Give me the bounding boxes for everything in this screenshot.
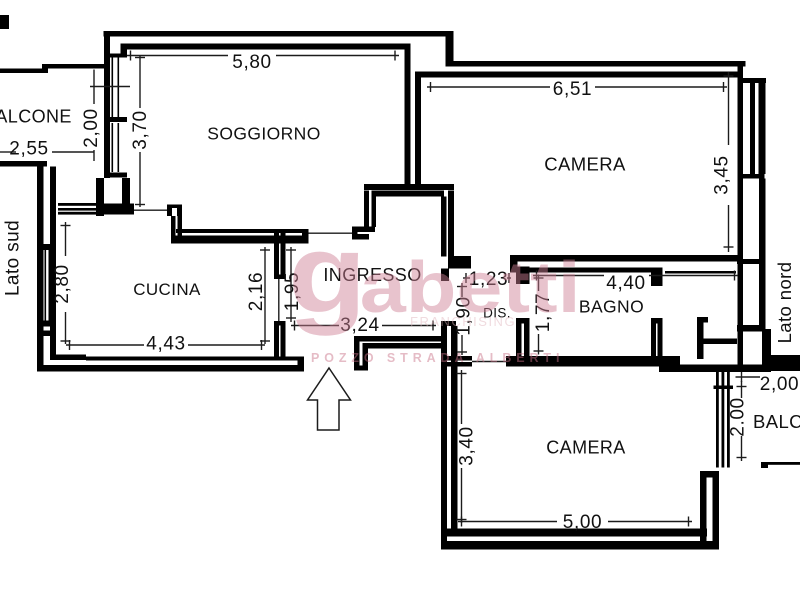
- svg-text:2,16: 2,16: [246, 272, 267, 311]
- svg-text:CAMERA: CAMERA: [544, 154, 626, 175]
- svg-text:BALCONE: BALCONE: [0, 107, 72, 127]
- svg-text:BAGNO: BAGNO: [579, 297, 644, 317]
- svg-text:3,40: 3,40: [457, 426, 478, 465]
- svg-text:Lato nord: Lato nord: [774, 262, 795, 344]
- svg-text:CAMERA: CAMERA: [546, 438, 625, 458]
- svg-text:2,00: 2,00: [760, 374, 799, 395]
- svg-text:5,80: 5,80: [232, 52, 271, 73]
- svg-text:4,40: 4,40: [606, 273, 645, 294]
- svg-text:2.00: 2.00: [728, 397, 749, 436]
- svg-text:6,51: 6,51: [553, 79, 592, 100]
- svg-text:2,55: 2,55: [9, 139, 48, 160]
- svg-text:CUCINA: CUCINA: [133, 280, 201, 299]
- svg-text:4,43: 4,43: [146, 334, 185, 355]
- svg-text:SOGGIORNO: SOGGIORNO: [207, 124, 320, 144]
- svg-text:BALCONE: BALCONE: [753, 411, 800, 432]
- svg-text:3,45: 3,45: [712, 155, 733, 194]
- svg-text:Lato sud: Lato sud: [3, 220, 24, 296]
- svg-text:POZZO STRADA ALBERTI: POZZO STRADA ALBERTI: [311, 351, 564, 365]
- svg-text:2,80: 2,80: [52, 264, 73, 303]
- svg-text:FRANCHISING: FRANCHISING: [410, 314, 516, 329]
- svg-text:5,00: 5,00: [563, 512, 602, 533]
- svg-text:3,70: 3,70: [130, 110, 151, 149]
- svg-text:2,00: 2,00: [81, 108, 102, 147]
